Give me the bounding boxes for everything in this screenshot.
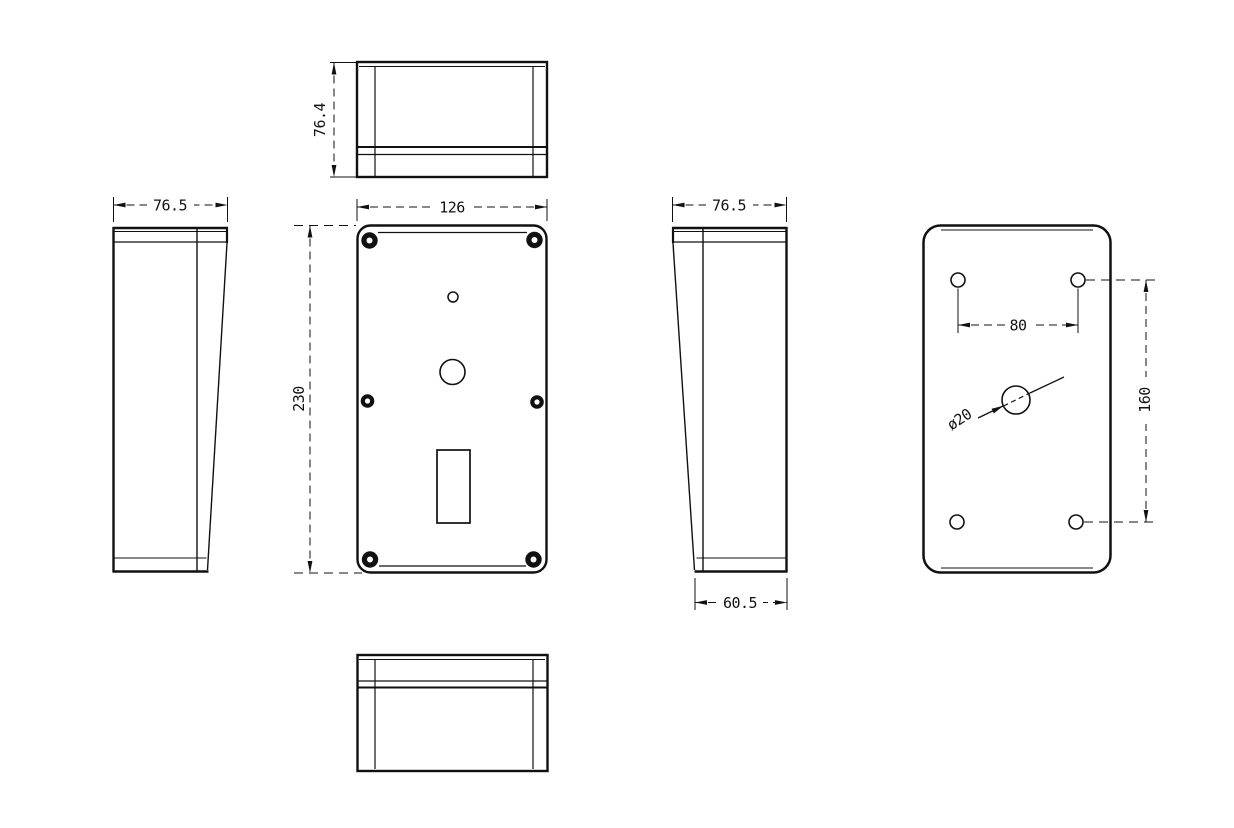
dimension-label-60-5: 60.5 [723,594,757,612]
dimension-label-76-4: 76.4 [311,102,329,137]
engineering-drawing-canvas: 76.4 76.5 [0,0,1234,828]
screw-top-left-center [367,238,373,244]
screw-mid-right-center [534,399,539,404]
dimension-label-76-5-right: 76.5 [712,197,746,215]
orthographic-views-drawing: 76.4 76.5 [0,0,1234,828]
drawing-background [0,0,1234,828]
screw-top-right-center [532,237,538,243]
screw-bottom-left-center [367,557,373,563]
dimension-label-230: 230 [290,386,308,412]
dimension-label-80: 80 [1009,317,1027,335]
dimension-label-160: 160 [1136,387,1154,413]
dimension-label-76-5-left: 76.5 [153,197,187,215]
screw-mid-left-center [365,398,370,403]
dimension-label-126: 126 [439,199,465,217]
screw-bottom-right-center [531,557,537,563]
